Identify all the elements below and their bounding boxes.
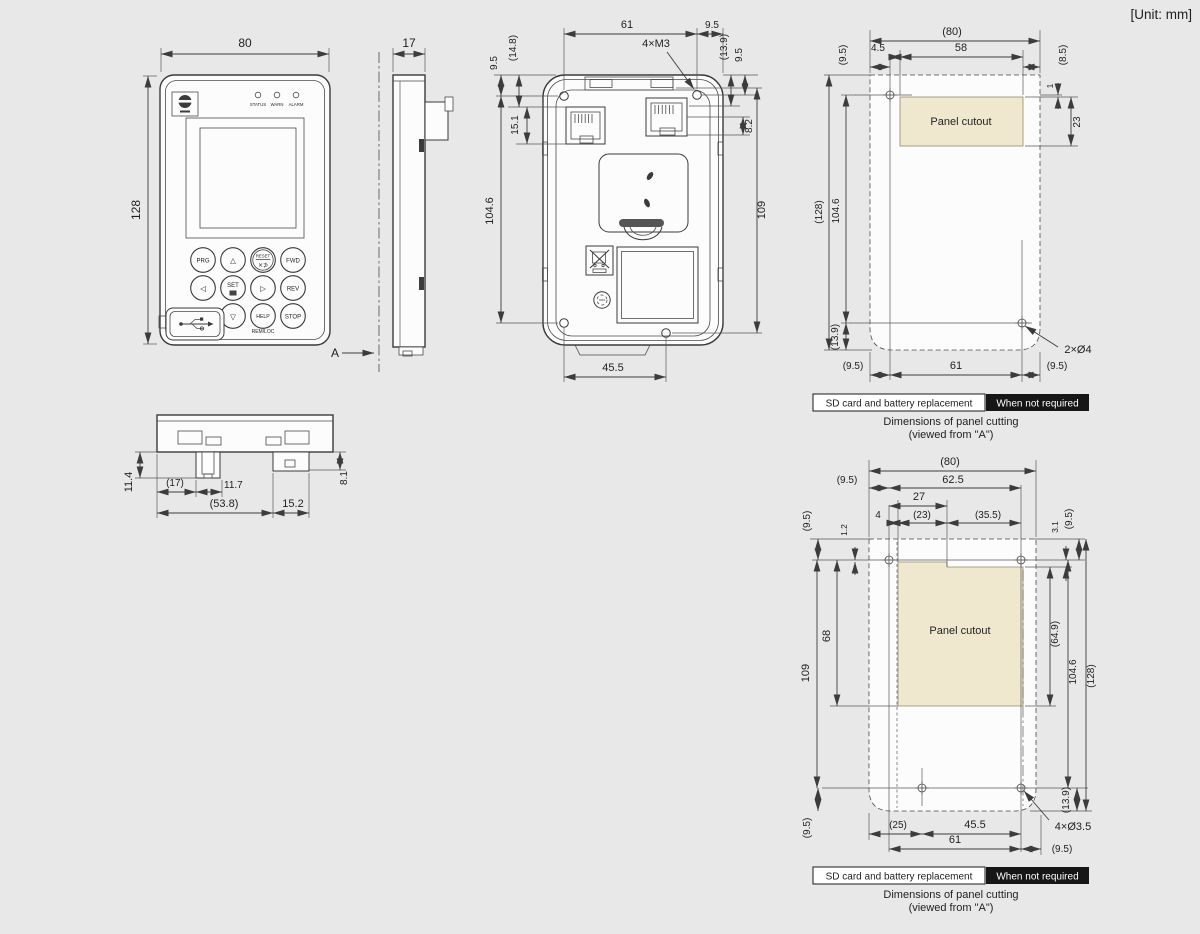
dim-label: 9.5 [734, 48, 745, 62]
button-label: STOP [285, 314, 301, 320]
dim-label: (13.9) [1061, 787, 1072, 813]
tag-label: When not required [996, 872, 1078, 883]
dim-label: 80 [238, 36, 252, 50]
panel-cutout-label: Panel cutout [929, 625, 990, 637]
button-sublabel: ×⊅ [258, 262, 268, 269]
keypad-bottom-body [157, 415, 333, 452]
dim-label: 8.2 [744, 119, 755, 133]
dim-label: 109 [756, 201, 768, 219]
drawing-sheet: [Unit: mm] 80 128 STATUS WARN ALARM [0, 0, 1200, 934]
dim-label: (17) [166, 478, 184, 489]
dim-label: (35.5) [975, 510, 1001, 521]
caption-top: SD card and battery replacement When not… [813, 394, 1089, 441]
keypad-rear-body [543, 75, 723, 345]
dim-label: 9.5 [705, 20, 719, 31]
dim-label: 61 [621, 19, 633, 31]
dim-label: 62.5 [942, 474, 963, 486]
keypad-front-body [160, 75, 330, 345]
dim-label: 58 [955, 42, 967, 54]
rear-view: 61 9.5 4×M3 9.5 (14.8) 15.1 104.6 (13.9)… [484, 19, 768, 382]
dim-label: (9.5) [802, 818, 813, 839]
side-view: 17 A [331, 36, 453, 372]
dim-label: 23 [1072, 116, 1083, 128]
front-view: 80 128 STATUS WARN ALARM PRG △ [129, 36, 330, 345]
tag-label: SD card and battery replacement [826, 872, 973, 883]
dim-label: (9.5) [838, 45, 849, 66]
dim-label: (23) [913, 510, 931, 521]
dim-label: 61 [950, 360, 962, 372]
dim-label: 104.6 [831, 198, 842, 223]
dim-label: 1 [1045, 83, 1055, 88]
dim-label: (8.5) [1058, 45, 1069, 66]
up-icon: △ [230, 256, 236, 265]
panel-cutout-bottom: Panel cutout (80) (9.5) 62.5 27 4 [800, 456, 1097, 914]
dim-label: 1.2 [839, 524, 849, 536]
led-label: WARN [271, 102, 284, 107]
dim-label: 27 [913, 491, 925, 503]
dim-label: (14.8) [508, 35, 519, 61]
dim-label: 104.6 [1068, 659, 1079, 684]
dim-label: 9.5 [489, 56, 500, 70]
dim-label: 11.7 [224, 480, 243, 491]
rear-connector [425, 102, 448, 140]
dim-label: (128) [814, 200, 825, 223]
button-label: HELP [256, 314, 270, 320]
right-icon: ▷ [260, 284, 266, 293]
button-label: RESET [256, 254, 271, 259]
hole-note: 2×Ø4 [1064, 344, 1091, 356]
dim-label: (53.8) [210, 498, 239, 510]
dim-label: (9.5) [1052, 844, 1073, 855]
dim-label: 109 [800, 664, 812, 682]
dim-label: 4 [875, 510, 881, 521]
bottom-view: 11.4 (17) 11.7 (53.8) 15.2 8.1 [123, 415, 350, 518]
dim-label: 128 [129, 200, 143, 220]
section-label: A [331, 346, 339, 360]
dim-label: 3.1 [1050, 521, 1060, 533]
unit-note: [Unit: mm] [1130, 7, 1192, 22]
caption-line: (viewed from "A") [909, 429, 994, 441]
dim-label: 15.1 [510, 115, 521, 135]
dim-label: (128) [1086, 664, 1097, 687]
dim-label: 104.6 [484, 197, 496, 225]
caption-line: Dimensions of panel cutting [883, 416, 1018, 428]
dim-label: (80) [942, 26, 962, 38]
dim-label: 4.5 [871, 43, 885, 54]
panel-cutout-top: Panel cutout (80) 4.5 58 (9.5) (8.5) 1 2… [813, 26, 1092, 441]
caption-line: Dimensions of panel cutting [883, 889, 1018, 901]
tag-label: SD card and battery replacement [826, 399, 973, 410]
dim-label: (9.5) [802, 511, 813, 532]
dim-label: 8.1 [339, 471, 350, 485]
dim-label: (13.9) [830, 324, 841, 350]
dim-label: 17 [402, 36, 416, 50]
left-icon: ◁ [200, 284, 206, 293]
dim-label: 45.5 [602, 362, 623, 374]
dim-label: 45.5 [964, 819, 985, 831]
dim-label: (80) [940, 456, 960, 468]
led-label: ALARM [289, 102, 304, 107]
dim-label: (9.5) [837, 475, 858, 486]
dim-label: (13.9) [719, 34, 730, 60]
caption-bottom: SD card and battery replacement When not… [813, 867, 1089, 914]
button-label: REV [287, 286, 299, 292]
button-label: SET [227, 283, 239, 289]
dim-label: 11.4 [123, 472, 135, 493]
thread-note: 4×M3 [642, 38, 670, 50]
button-label: FWD [286, 258, 300, 264]
usb-port [159, 308, 224, 340]
set-save-icon [230, 291, 237, 296]
dim-label: (9.5) [1064, 509, 1075, 530]
panel-cutout-label: Panel cutout [930, 116, 991, 128]
dim-label: 61 [949, 834, 961, 846]
dim-label: 15.2 [282, 498, 303, 510]
dim-label: (64.9) [1050, 621, 1061, 647]
dim-label: (9.5) [843, 361, 864, 372]
led-label: STATUS [250, 102, 266, 107]
remloc-label: REM/LOC [252, 329, 275, 335]
dim-label: 68 [821, 630, 833, 642]
down-icon: ▽ [230, 312, 236, 321]
tag-label: When not required [996, 399, 1078, 410]
dim-label: (9.5) [1047, 361, 1068, 372]
dim-label: (25) [889, 820, 907, 831]
keypad-side-body [393, 75, 425, 347]
button-label: PRG [196, 258, 209, 264]
usb-housing [273, 452, 309, 471]
hole-note: 4×Ø3.5 [1055, 821, 1091, 833]
caption-line: (viewed from "A") [909, 902, 994, 914]
technical-drawing: [Unit: mm] 80 128 STATUS WARN ALARM [0, 0, 1200, 934]
